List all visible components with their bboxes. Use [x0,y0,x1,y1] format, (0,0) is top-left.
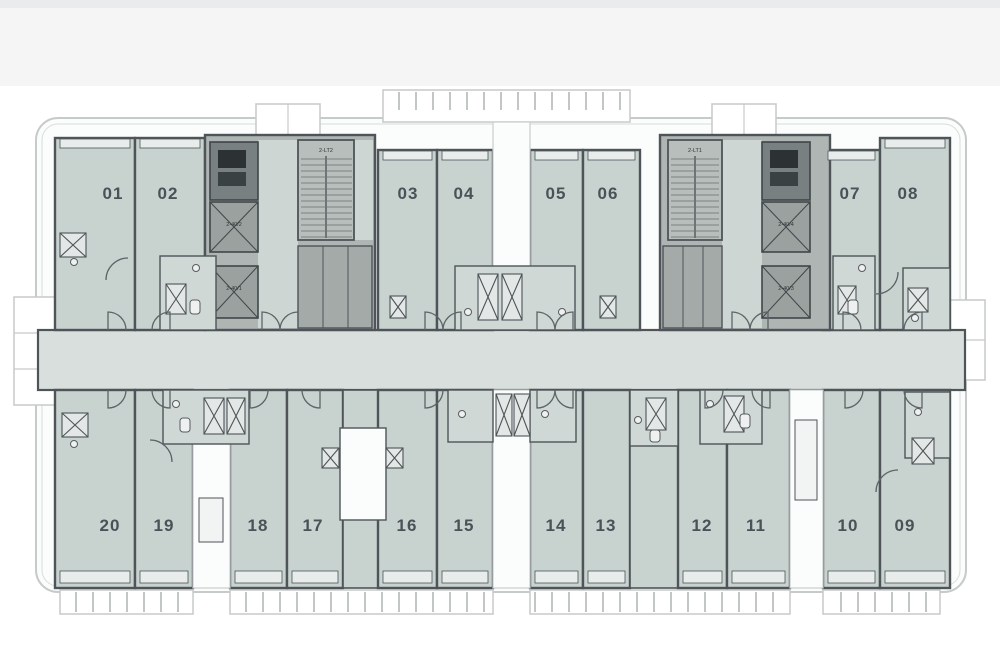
left-stair-label: 2-LT2 [319,148,333,154]
unit-label-18: 18 [248,516,269,535]
unit-03-room [378,150,437,330]
unit-label-14: 14 [546,516,567,535]
sink-icon [71,259,78,266]
window-unit-20 [60,571,130,583]
unit-label-08: 08 [898,184,919,203]
window-unit-18 [235,571,282,583]
vent-shaft-icon [166,284,186,314]
left-elevator-upper-label: 2-40/2 [226,222,242,228]
unit-label-12: 12 [692,516,713,535]
left-machine-equipment-2 [218,172,246,186]
left-shaft-duct [199,498,223,542]
right-elevator-lower-label: 2-40/3 [778,286,794,292]
floor-plan-screenshot: 01 02 03 04 05 06 07 08 20 19 18 17 16 1… [0,0,1000,666]
unit-label-06: 06 [598,184,619,203]
top-margin-band [0,8,1000,86]
window-unit-01 [60,139,130,148]
unit-label-17: 17 [303,516,324,535]
right-machine-equipment [770,150,798,168]
left-core [205,135,375,330]
top-edge-strip [0,0,1000,8]
window-unit-17 [292,571,338,583]
top-left-bay [256,104,320,136]
unit-label-11: 11 [746,516,766,535]
vent-shaft-icon [502,274,522,320]
window-unit-10 [828,571,875,583]
window-unit-07 [828,151,875,160]
vent-shaft-icon [600,296,616,318]
left-machine-equipment [218,150,246,168]
window-unit-19 [140,571,188,583]
sink-icon [635,417,642,424]
window-unit-09 [885,571,945,583]
window-unit-04 [442,151,488,160]
unit-label-20: 20 [100,516,121,535]
sink-icon [542,411,549,418]
window-unit-08 [885,139,945,148]
vent-shaft-icon [60,233,86,257]
window-unit-11 [732,571,785,583]
unit-label-03: 03 [398,184,419,203]
unit-label-15: 15 [454,516,475,535]
left-core-rooms [298,246,372,328]
window-unit-13 [588,571,625,583]
vent-shaft-icon [646,398,666,430]
sink-icon [859,265,866,272]
sink-icon [193,265,200,272]
window-unit-05 [535,151,578,160]
vent-shaft-icon [912,438,934,464]
right-machine-equipment-2 [770,172,798,186]
window-unit-16 [383,571,432,583]
right-stair-label: 2-LT1 [688,148,702,154]
top-balcony [383,90,630,122]
window-unit-03 [383,151,432,160]
mid-left-shaft [340,428,386,520]
floor-plan-canvas: 01 02 03 04 05 06 07 08 20 19 18 17 16 1… [0,0,1000,666]
unit-label-02: 02 [158,184,179,203]
right-core-rooms [663,246,722,328]
left-core-passage [354,140,373,240]
unit-label-05: 05 [546,184,567,203]
unit-10-room [823,390,880,588]
unit-label-19: 19 [154,516,175,535]
vent-shaft-icon [227,398,245,434]
sink-icon [912,315,919,322]
window-unit-15 [442,571,488,583]
vent-shaft-icon [514,394,530,436]
right-shaft-duct [795,420,817,500]
window-unit-02 [140,139,200,148]
left-elevator-lower-label: 2-40/1 [226,286,242,292]
toilet-icon [740,414,750,428]
vent-shaft-icon [496,394,512,436]
vent-shaft-icon [204,398,224,434]
unit-label-01: 01 [103,184,124,203]
sink-icon [915,409,922,416]
vent-shaft-icon [322,448,339,468]
unit-label-04: 04 [454,184,475,203]
window-unit-14 [535,571,578,583]
right-core [660,135,830,330]
vent-shaft-icon [478,274,498,320]
toilet-icon [190,300,200,314]
right-elevator-upper-label: 2-40/4 [778,222,794,228]
unit-label-10: 10 [838,516,859,535]
window-unit-06 [588,151,635,160]
sink-icon [173,401,180,408]
sink-icon [465,309,472,316]
sink-icon [459,411,466,418]
unit-label-13: 13 [596,516,617,535]
toilet-icon [650,430,660,442]
right-core-lobby [722,140,762,328]
vent-shaft-icon [62,413,88,437]
left-core-lobby [258,140,298,328]
toilet-icon [848,300,858,314]
unit-label-09: 09 [895,516,916,535]
unit-17-room [287,390,343,588]
vent-shaft-icon [386,448,403,468]
top-right-bay [712,104,776,136]
toilet-icon [180,418,190,432]
pod-15 [448,390,493,442]
vent-shaft-icon [390,296,406,318]
unit-label-07: 07 [840,184,861,203]
window-unit-12 [683,571,722,583]
unit-16-room [378,390,437,588]
sink-icon [71,441,78,448]
vent-shaft-icon [908,288,928,312]
unit-13-room [583,390,630,588]
unit-label-16: 16 [397,516,418,535]
central-corridor [38,330,965,390]
